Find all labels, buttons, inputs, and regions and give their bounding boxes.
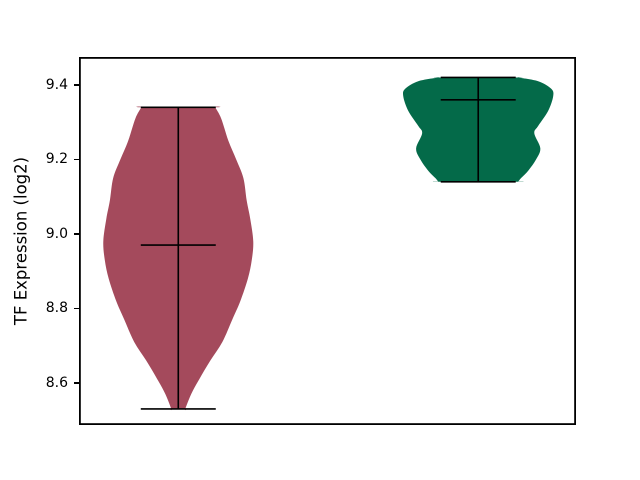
y-tick-label: 9.2 (24, 150, 68, 168)
y-tick-label: 9.0 (24, 225, 68, 243)
y-tick-mark (74, 233, 79, 235)
y-tick-label: 9.4 (24, 76, 68, 94)
y-tick-mark (74, 84, 79, 86)
plot-area (79, 57, 576, 425)
y-tick-label: 8.6 (24, 374, 68, 392)
y-tick-mark (74, 159, 79, 161)
violin-plot-figure: TF Expression (log2) 9.49.29.08.88.6 (0, 0, 640, 480)
y-tick-label: 8.8 (24, 299, 68, 317)
y-tick-mark (74, 382, 79, 384)
y-tick-mark (74, 308, 79, 310)
